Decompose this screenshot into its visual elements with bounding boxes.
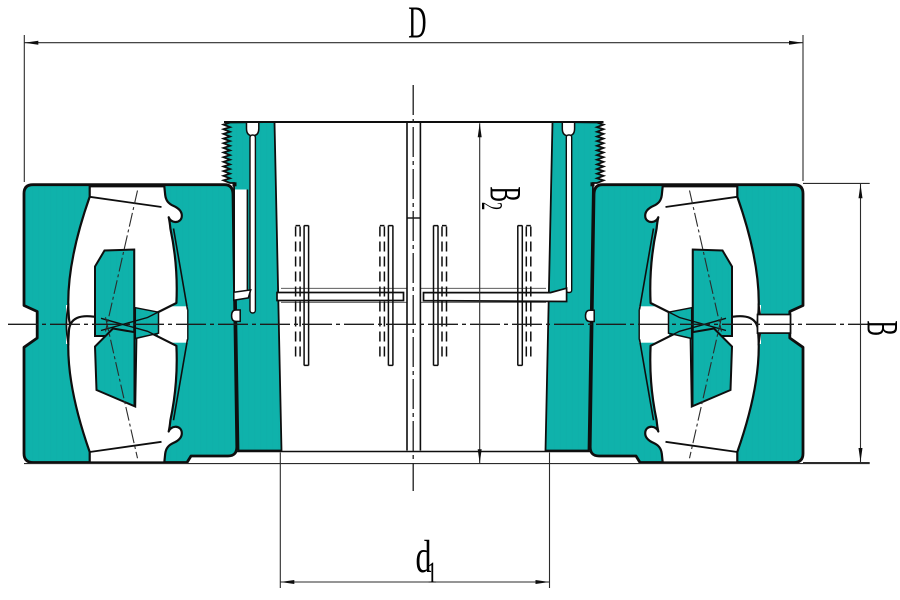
svg-text:D: D [408, 0, 426, 49]
svg-text:B: B [858, 321, 900, 337]
